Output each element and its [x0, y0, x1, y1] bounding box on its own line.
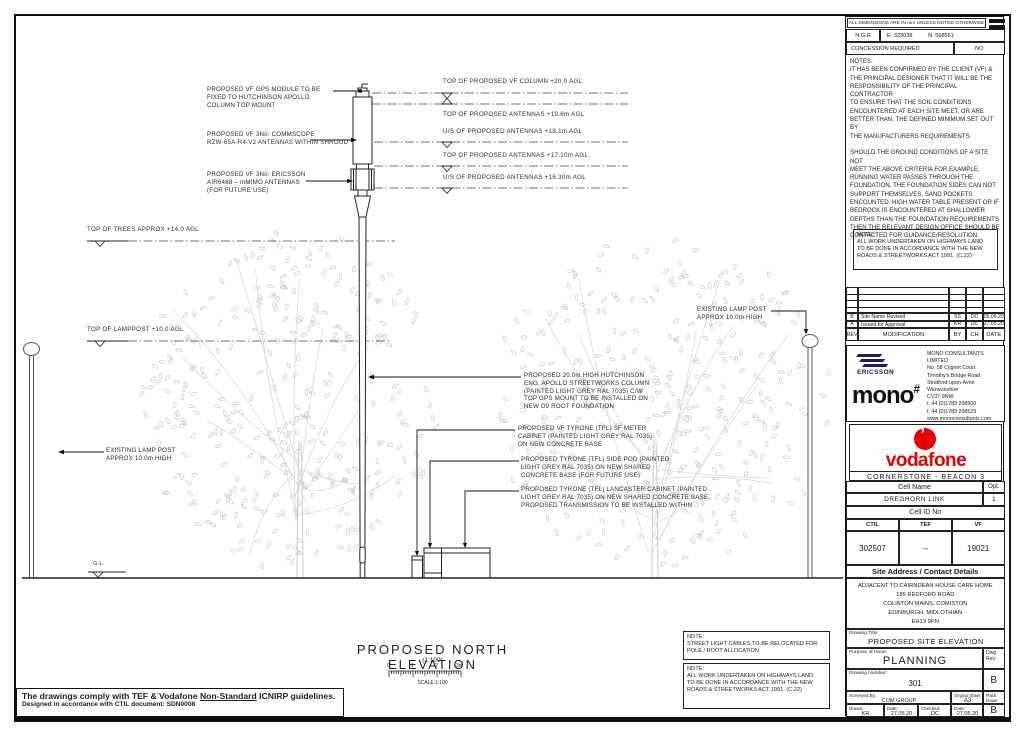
- consultants-address: MONO CONSULTANTS LIMITED No. 58 Cygnet C…: [927, 351, 1003, 423]
- cell-opt-label: Opt.: [983, 481, 1005, 493]
- pack-issue-value: B: [983, 704, 1005, 717]
- level-us-antennas-1: U/S OF PROPOSED ANTENNAS +18.1m AGL: [443, 128, 582, 135]
- stamp-chip-1: [989, 19, 1005, 23]
- rev-header-ch: CH: [966, 328, 983, 341]
- surveyed-cell: Surveyed By: COM GROUP: [846, 691, 951, 704]
- checked-date-value: 27.05.20: [952, 711, 983, 717]
- rev-row-a-date: 27.05.20: [983, 321, 1005, 329]
- soil-notes: NOTES: IT HAS BEEN CONFIRMED BY THE CLIE…: [850, 58, 1001, 241]
- drawing-title-label: Drawing Title:: [849, 631, 879, 636]
- ctil-value: 302507: [846, 531, 899, 565]
- soil-notes-body: IT HAS BEEN CONFIRMED BY THE CLIENT (VF)…: [850, 66, 1001, 240]
- scale-tick-3: 3m: [456, 663, 463, 669]
- rev-gridline: [846, 294, 1004, 295]
- ericsson-wordmark: ERICSSON: [857, 369, 894, 376]
- scale-bar-label: SCALE 1:100: [330, 680, 535, 686]
- drawn-date-cell: Date: 27.05.20: [884, 704, 918, 717]
- mono-wordmark: mono: [852, 382, 913, 409]
- callout-mmimo-antennas: PROPOSED VF 3No. ERICSSON AIR6488 – mMIM…: [207, 171, 306, 194]
- ericsson-logo-icon: ERICSSON: [857, 354, 894, 376]
- rev-row-a-mod: Issued for Approval: [858, 321, 949, 329]
- rev-row-a-ch: DC: [966, 321, 983, 329]
- scale-tick-0: 0: [387, 663, 390, 669]
- callout-lancaster-cabinet: PROPOSED TYRONE (TFL) LANCASTER CABINET …: [521, 486, 710, 509]
- rev-row-b-rev: B: [846, 313, 858, 321]
- ngr-northing: N: 668561: [928, 33, 954, 39]
- drawing-title-cell: Drawing Title: PROPOSED SITE ELEVATION: [846, 629, 1005, 648]
- icnirp-text-a: The drawings comply with TEF & Vodafone: [22, 691, 200, 701]
- ngr-easting: E: 323038: [887, 33, 913, 39]
- ground-level-label: G.L.: [93, 561, 105, 567]
- vodafone-box: ’ vodafone CORNERSTONE - BEACON 3: [849, 424, 1002, 481]
- icnirp-compliance-box: The drawings comply with TEF & Vodafone …: [16, 688, 344, 717]
- checked-date-cell: Date: 27.05.20: [951, 704, 983, 717]
- cell-name-label: Cell Name: [846, 481, 983, 493]
- elevation-scale: (1:100): [330, 657, 535, 664]
- ngr-values: E: 323038 N: 668561: [880, 29, 1005, 42]
- icnirp-text-b: ICNIRP guidelines.: [257, 691, 336, 701]
- rev-gridline: [846, 307, 1004, 308]
- rev-row-b-mod: Site Name Revised: [858, 313, 949, 321]
- note-highways-land: NOTE: ALL WORK UNDERTAKEN ON HIGHWAYS LA…: [683, 663, 830, 709]
- note-street-light-cables: NOTE: STREET LIGHT CABLES TO BE RELOCATE…: [683, 631, 830, 660]
- level-top-of-trees: TOP OF TREES APPROX +14.0 AGL: [87, 226, 199, 233]
- drawing-sheet: PROPOSED VF GPS MODULE TO BE FIXED TO HU…: [0, 0, 1024, 732]
- level-top-antennas-2: TOP OF PROPOSED ANTENNAS +17.10m AGL: [443, 152, 588, 159]
- cell-id-label: Cell ID No: [846, 506, 1005, 519]
- rev-header-by: BY: [949, 328, 966, 341]
- rev-row-b-date: 05.06.20: [983, 313, 1005, 321]
- checked-value: DC: [919, 711, 951, 717]
- drawing-number-label: Drawing Number:: [849, 671, 887, 676]
- level-top-of-lamppost: TOP OF LAMPPOST +10.0 AGL: [87, 326, 184, 333]
- vodafone-logo-icon: ’: [914, 428, 936, 450]
- site-address-label: Site Address / Contact Details: [846, 565, 1005, 578]
- cell-name-value: DREGHORN LINK: [846, 493, 983, 506]
- sheet-size-cell: Original Sheet Size: A3: [951, 691, 983, 704]
- icnirp-text-underlined: Non-Standard: [200, 691, 257, 701]
- tef-label: TEF: [899, 519, 952, 531]
- callout-existing-lamp-left: EXISTING LAMP POST APPROX 10.0m HIGH: [106, 447, 176, 463]
- level-us-antennas-2: U/S OF PROPOSED ANTENNAS +16.30m AGL: [443, 174, 586, 181]
- callout-meter-cabinet: PROPOSED VF TYRONE (TFL) SF METER CABINE…: [518, 425, 652, 448]
- callout-commscope-antennas: PROPOSED VF 3No. COMMSCOPE RZW-65A-R4-V2…: [207, 131, 348, 147]
- vf-value: 19021: [952, 531, 1005, 565]
- callout-existing-lamp-right: EXISTING LAMP POST APPROX 10.0m HIGH: [697, 306, 767, 322]
- rev-row-b-by: SS: [949, 313, 966, 321]
- rev-row-a-rev: A: [846, 321, 858, 329]
- vf-label: VF: [952, 519, 1005, 531]
- ctil-label: CTIL: [846, 519, 899, 531]
- callout-side-pod: PROPOSED TYRONE (TFL) SIDE POD (PAINTED …: [521, 456, 670, 479]
- vodafone-wordmark: vodafone: [850, 450, 1002, 472]
- ctil-doc-statement: Designed in accordance with CTIL documen…: [22, 701, 338, 708]
- rev-row-b-ch: DC: [966, 313, 983, 321]
- stamp-chip-2: [989, 25, 1005, 29]
- level-top-of-column: TOP OF PROPOSED VF COLUMN +20.0 AGL: [443, 78, 582, 85]
- title-block: ALL DIMENSIONS ARE IN mm UNLESS NOTED OT…: [845, 16, 1004, 716]
- drawn-value: KR: [847, 711, 884, 717]
- rev-gridline: [846, 300, 1004, 301]
- dims-note: ALL DIMENSIONS ARE IN mm UNLESS NOTED OT…: [847, 18, 986, 28]
- highways-note: NOTE: ALL WORK UNDERTAKEN ON HIGHWAYS LA…: [853, 229, 998, 270]
- surveyed-value: COM GROUP: [847, 698, 951, 704]
- sheet-size-value: A3: [952, 698, 983, 704]
- tef-value: –: [899, 531, 952, 565]
- callout-gps-module: PROPOSED VF GPS MODULE TO BE FIXED TO HU…: [207, 86, 320, 109]
- drawing-title: PROPOSED SITE ELEVATION: [847, 637, 1005, 646]
- callout-streetworks-column: PROPOSED 20.0m HIGH HUTCHINSON ENG. APOL…: [524, 372, 649, 411]
- dwg-rev-value: B: [983, 669, 1005, 691]
- purpose-value: PLANNING: [847, 655, 983, 667]
- dwg-rev-label: Dwg Rev:: [983, 648, 1005, 669]
- rev-header-rev: REV: [846, 328, 858, 341]
- rev-header-mod: MODIFICATION: [858, 328, 949, 341]
- checked-cell: Checked: DC: [918, 704, 951, 717]
- rev-header-date: DATE: [983, 328, 1005, 341]
- level-top-antennas-1: TOP OF PROPOSED ANTENNAS +19.6m AGL: [443, 111, 584, 118]
- scale-tick-1: 1: [411, 663, 414, 669]
- scale-tick-2: 2: [435, 663, 438, 669]
- rev-row-a-by: KR: [949, 321, 966, 329]
- drawing-number: 301: [847, 679, 983, 688]
- purpose-cell: Purpose of Issue: PLANNING: [846, 648, 983, 669]
- drawn-cell: Drawn: KR: [846, 704, 884, 717]
- cell-opt-value: 1: [983, 493, 1005, 506]
- concession-value: NO: [954, 42, 1005, 55]
- drawing-number-cell: Drawing Number: 301: [846, 669, 983, 691]
- consultants-box: ERICSSON mono# MONO CONSULTANTS LIMITED …: [846, 345, 1005, 422]
- mono-logo-icon: mono#: [852, 382, 920, 410]
- site-address: ADJACENT TO CAIRNDEAN HOUSE CARE HOME 18…: [846, 578, 1005, 629]
- icnirp-statement: The drawings comply with TEF & Vodafone …: [22, 691, 338, 701]
- ngr-label: N.G.R: [846, 29, 880, 42]
- concession-label: CONCESSION REQUIRED: [846, 42, 954, 55]
- pack-issue-label: Pack Issue:: [983, 691, 1005, 704]
- drawn-date-value: 27.05.20: [885, 711, 918, 717]
- soil-notes-title: NOTES:: [850, 58, 1001, 66]
- mono-hash: #: [913, 382, 920, 396]
